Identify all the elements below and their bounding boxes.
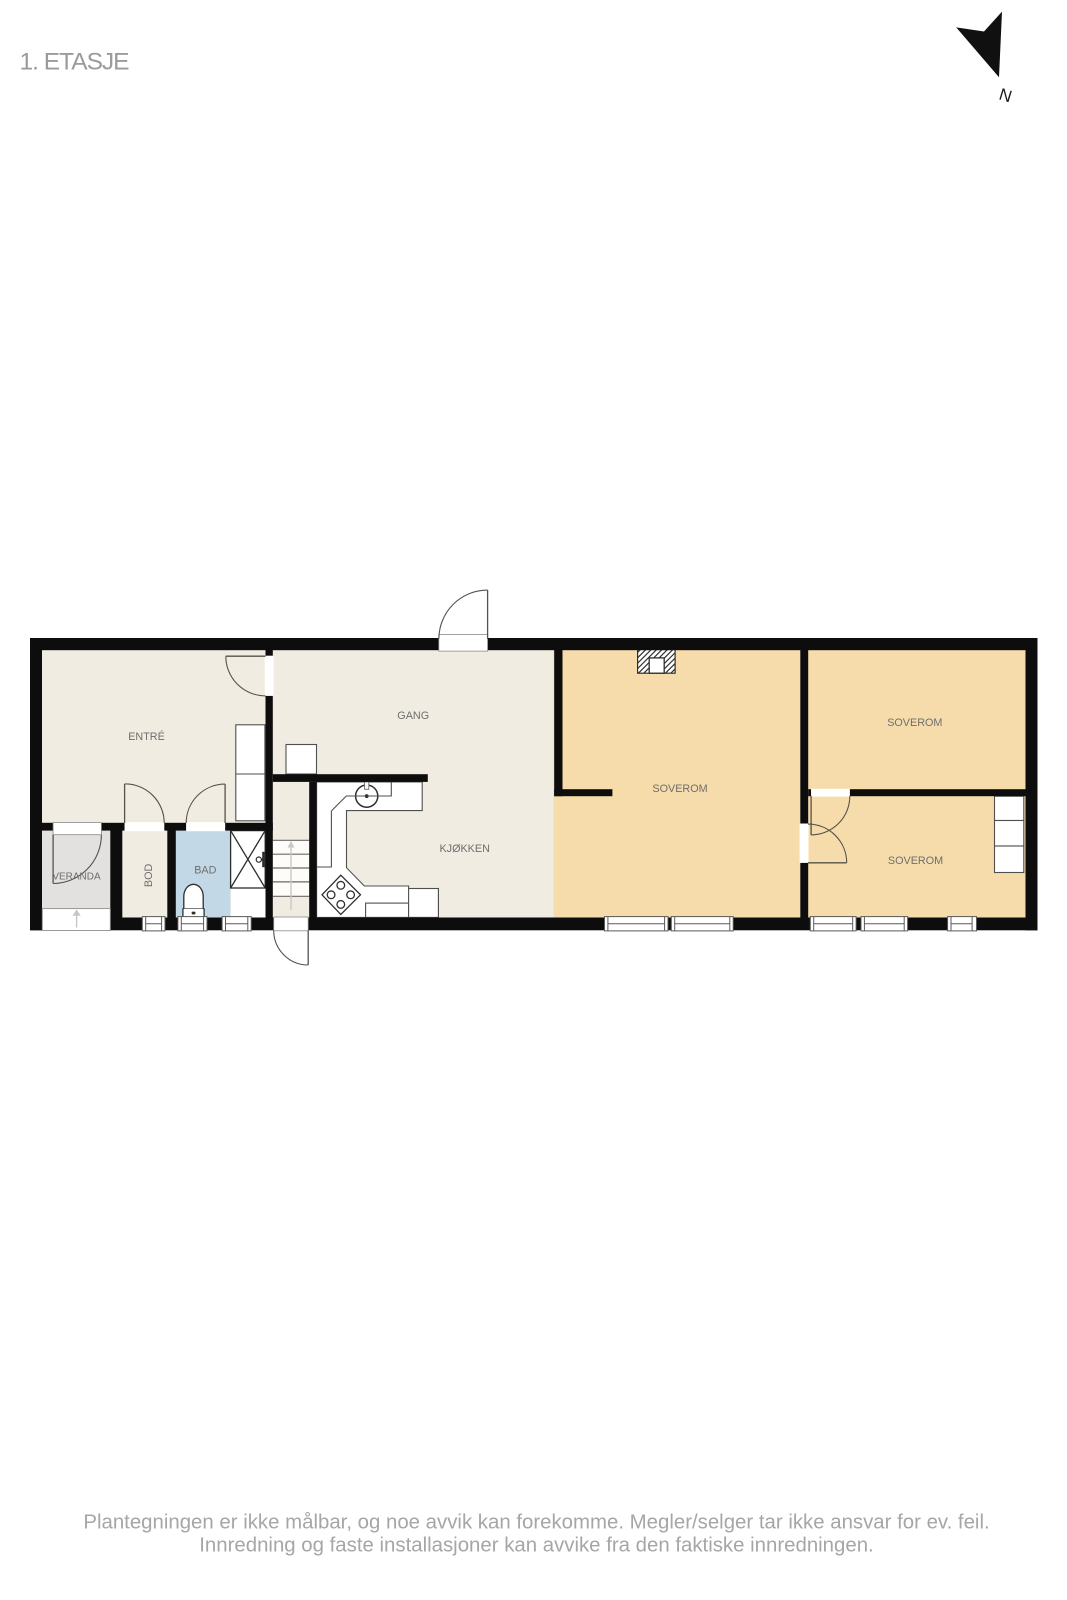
svg-text:SOVEROM: SOVEROM [652,783,707,795]
svg-text:ENTRÉ: ENTRÉ [128,730,165,743]
svg-text:VERANDA: VERANDA [52,871,101,882]
svg-text:KJØKKEN: KJØKKEN [439,843,489,855]
svg-text:BOD: BOD [143,864,155,888]
svg-text:SOVEROM: SOVEROM [887,717,942,729]
svg-text:GANG: GANG [397,710,429,722]
svg-text:Plantegningen er ikke målbar,: Plantegningen er ikke målbar, og noe avv… [83,1512,989,1534]
svg-text:1. ETASJE: 1. ETASJE [20,48,130,75]
svg-text:Innredning og faste installasj: Innredning og faste installasjoner kan a… [199,1535,873,1557]
svg-text:SOVEROM: SOVEROM [888,855,943,867]
svg-text:BAD: BAD [194,864,216,876]
